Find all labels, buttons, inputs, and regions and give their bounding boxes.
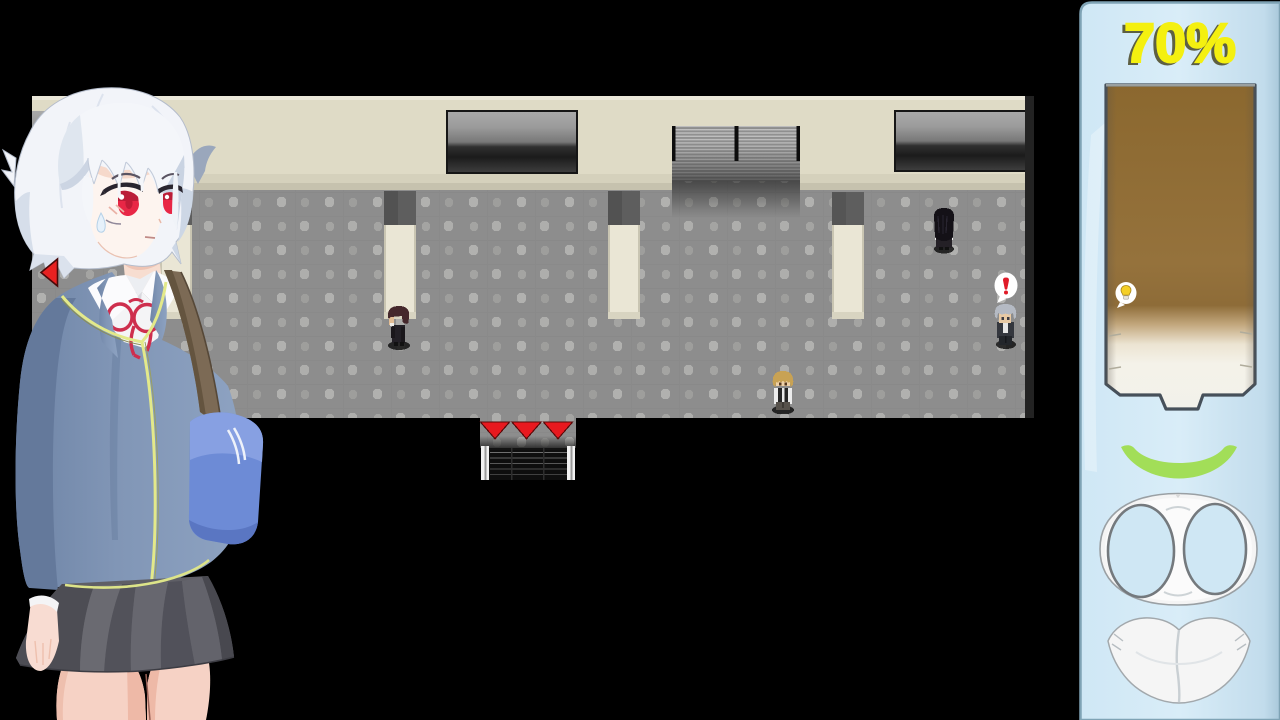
svg-text:70%: 70% <box>1124 11 1236 74</box>
